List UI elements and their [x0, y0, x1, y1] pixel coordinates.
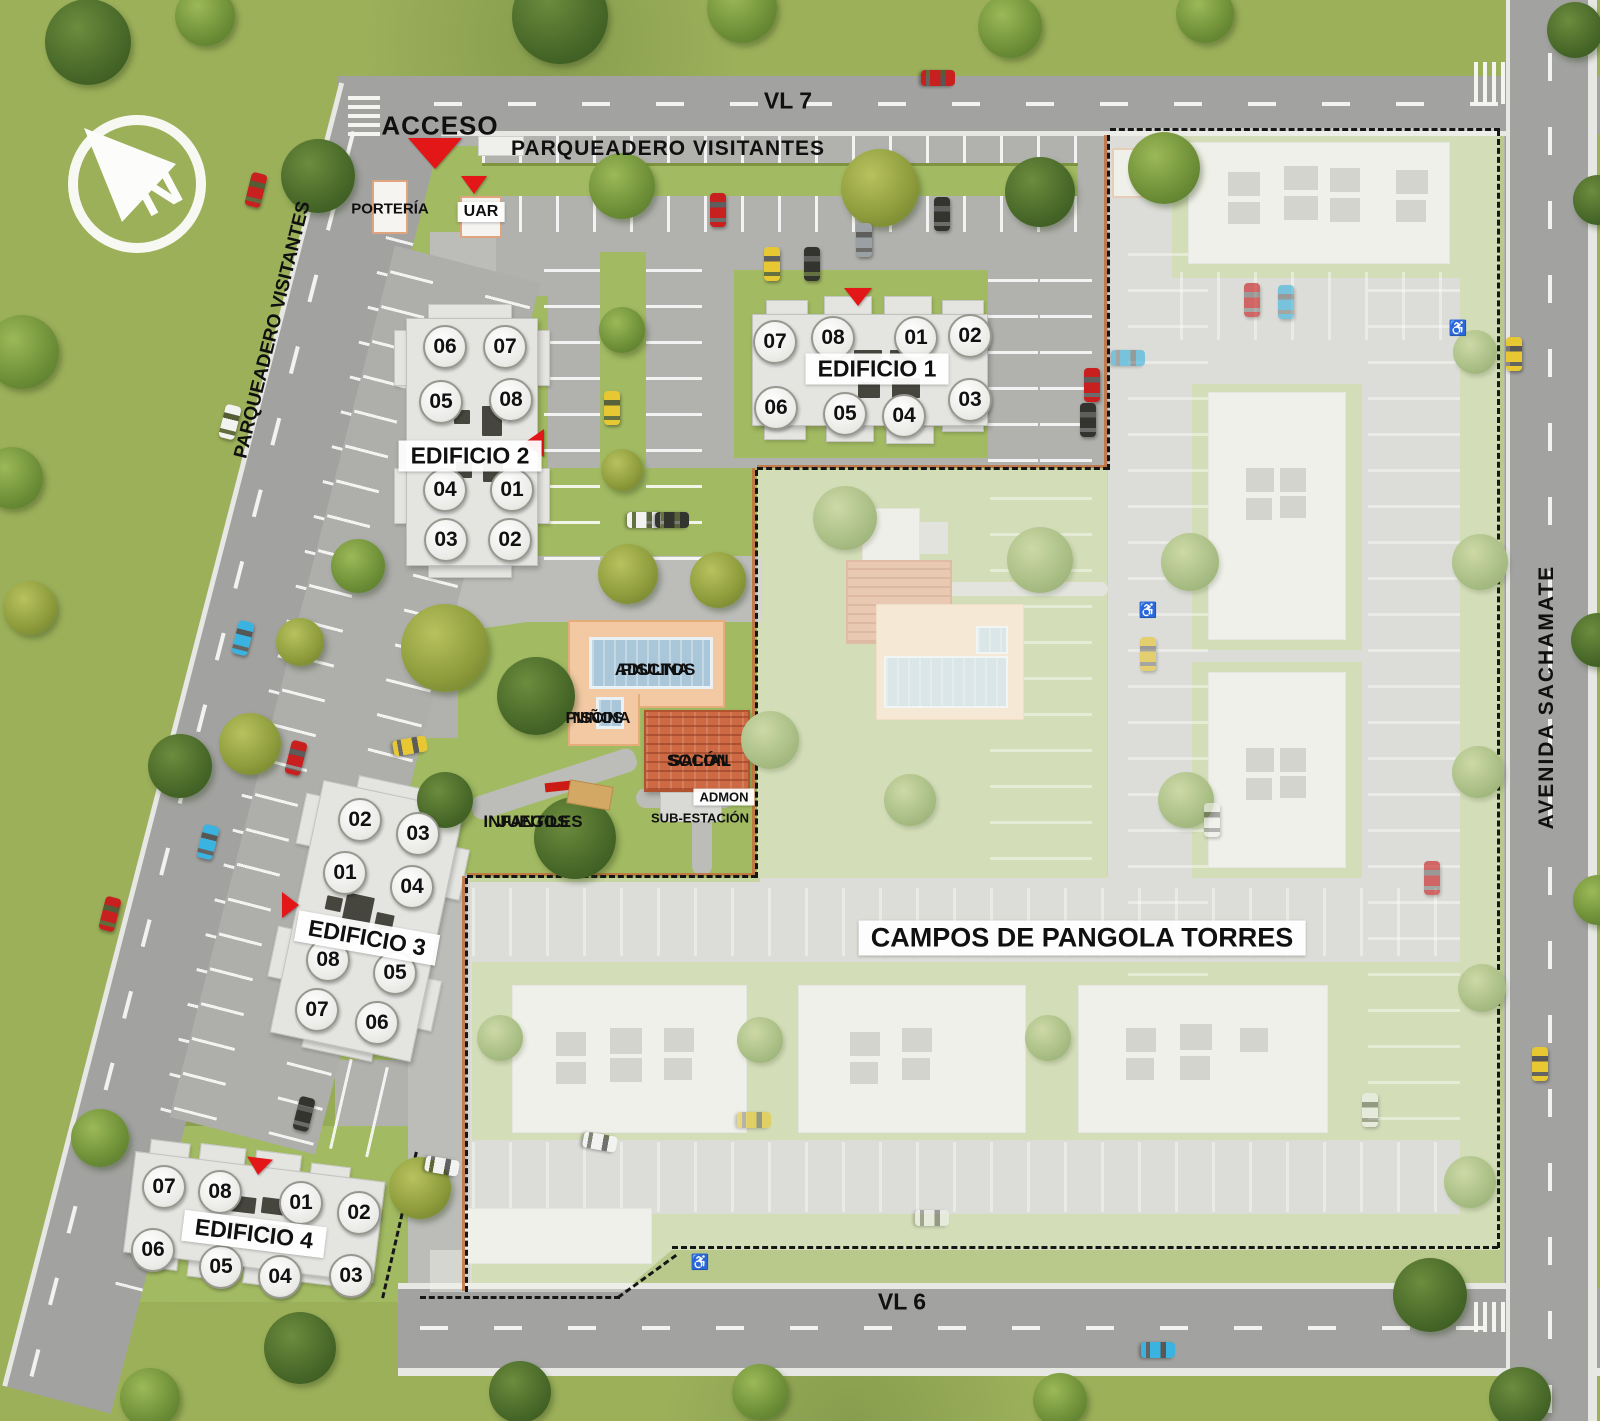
tree — [598, 544, 658, 604]
unit-badge: 01 — [490, 468, 534, 512]
accessible-parking-icon: ♿ — [1139, 601, 1158, 619]
unit-badge: 03 — [329, 1254, 373, 1298]
unit-badge: 02 — [338, 798, 382, 842]
car — [1141, 1342, 1175, 1358]
road-label-avenida: AVENIDA SACHAMATE — [1535, 565, 1559, 830]
property-line — [672, 1246, 1498, 1249]
car — [1140, 637, 1156, 671]
car — [1278, 285, 1294, 319]
ghost-roof-patch — [1246, 468, 1274, 492]
social-hall-label-line2: SOCIAL — [667, 751, 731, 770]
road-label-vl7: VL 7 — [764, 88, 812, 115]
project-label: CAMPOS DE PANGOLA TORRES — [859, 921, 1306, 956]
car — [1532, 1047, 1548, 1081]
ghost-roof-patch — [1228, 202, 1260, 224]
property-line — [467, 875, 757, 878]
property-line — [757, 467, 1109, 470]
admin-label: ADMON — [693, 789, 754, 806]
ghost-roof-patch — [850, 1032, 880, 1056]
unit-badge: 05 — [419, 380, 463, 424]
tree — [1007, 527, 1073, 593]
tree — [1033, 1373, 1087, 1421]
ghost-roof-patch — [902, 1058, 930, 1080]
unit-badge: 08 — [198, 1170, 242, 1214]
tree — [1444, 1156, 1496, 1208]
tree — [1547, 2, 1600, 58]
ghost-clubhouse-annex — [920, 522, 948, 554]
tree — [148, 734, 212, 798]
ghost-roof-patch — [1280, 496, 1306, 518]
car — [1080, 403, 1096, 437]
property-line — [1110, 128, 1500, 131]
unit-badge: 04 — [390, 865, 434, 909]
tree — [276, 618, 324, 666]
ghost-building — [1208, 672, 1346, 868]
site-plan-map: ♿ ♿ ♿ N VL 7 PARQUEADERO VISITANTES ACCE… — [0, 0, 1600, 1421]
car — [934, 197, 950, 231]
tree — [599, 307, 645, 353]
accessible-parking-icon: ♿ — [691, 1253, 710, 1271]
ghost-roof-patch — [1280, 468, 1306, 492]
unit-badge: 04 — [258, 1255, 302, 1299]
car — [804, 247, 820, 281]
unit-badge: 03 — [396, 812, 440, 856]
parking-stalls — [482, 196, 1078, 232]
ghost-roof-patch — [664, 1028, 694, 1052]
tree — [281, 139, 355, 213]
ghost-pool — [884, 656, 1008, 708]
ghost-roof-patch — [1330, 198, 1360, 222]
tree — [219, 713, 281, 775]
tree — [813, 486, 877, 550]
ghost-roof-patch — [1284, 196, 1318, 220]
property-line — [465, 878, 468, 1292]
ghost-roof-patch — [556, 1062, 586, 1084]
tree — [1452, 746, 1504, 798]
unit-badge: 07 — [295, 988, 339, 1032]
tree — [1176, 0, 1234, 43]
unit-badge: 02 — [948, 314, 992, 358]
ghost-roof-patch — [1246, 748, 1274, 772]
car — [915, 1210, 949, 1226]
car — [604, 391, 620, 425]
parking-stalls — [988, 256, 1038, 462]
unit-badge: 06 — [355, 1001, 399, 1045]
tree — [1452, 534, 1508, 590]
ghost-roof-patch — [1246, 778, 1272, 800]
ghost-roof-patch — [1228, 172, 1260, 196]
unit-badge: 08 — [489, 378, 533, 422]
road-edge — [398, 1368, 1600, 1376]
unit-badge: 01 — [279, 1181, 323, 1225]
unit-badge: 07 — [142, 1165, 186, 1209]
ghost-kids-pool — [976, 626, 1008, 654]
crosswalk — [1474, 62, 1506, 104]
car — [737, 1112, 771, 1128]
unit-badge: 07 — [483, 325, 527, 369]
ghost-parking-stalls — [1368, 270, 1460, 1120]
unit-badge: 03 — [424, 518, 468, 562]
ghost-roof-patch — [1280, 748, 1306, 772]
ghost-roof-patch — [1126, 1028, 1156, 1052]
car — [710, 193, 726, 227]
building-3-entry-arrow — [282, 892, 299, 918]
unit-badge: 04 — [882, 394, 926, 438]
ghost-roof-patch — [1246, 498, 1272, 520]
ghost-roof-patch — [850, 1062, 878, 1084]
ghost-roof-patch — [1240, 1028, 1268, 1052]
unit-badge: 06 — [423, 325, 467, 369]
ghost-building — [462, 1208, 652, 1264]
ghost-roof-patch — [664, 1058, 692, 1080]
access-arrow-small — [461, 176, 487, 194]
tree — [978, 0, 1042, 58]
property-line — [755, 470, 758, 878]
building-4-entry-arrow — [245, 1156, 273, 1176]
parking-stalls — [544, 258, 600, 560]
ghost-roof-patch — [1280, 776, 1306, 798]
ghost-roof-patch — [1126, 1058, 1154, 1080]
ghost-roof-patch — [1180, 1024, 1212, 1050]
ghost-roof-patch — [610, 1028, 642, 1054]
tree — [45, 0, 131, 85]
tree — [1458, 964, 1506, 1012]
unit-badge: 05 — [823, 392, 867, 436]
tree — [401, 604, 489, 692]
median-green — [482, 163, 1078, 196]
tree — [1161, 533, 1219, 591]
unit-badge: 04 — [423, 468, 467, 512]
tree — [489, 1361, 551, 1421]
tree — [497, 657, 575, 735]
tree — [264, 1312, 336, 1384]
tree — [3, 581, 57, 635]
tree — [120, 1368, 180, 1421]
tree — [737, 1017, 783, 1063]
tree — [690, 552, 746, 608]
tree — [1128, 132, 1200, 204]
unit-badge: 02 — [488, 518, 532, 562]
uar-label: UAR — [458, 202, 505, 222]
building-1-label: EDIFICIO 1 — [806, 354, 949, 385]
ghost-roof-patch — [1180, 1056, 1210, 1080]
car — [856, 223, 872, 257]
property-line — [420, 1296, 620, 1299]
car — [1111, 350, 1145, 366]
substation-label: SUB-ESTACIÓN — [651, 811, 749, 826]
ghost-roof-patch — [1284, 166, 1318, 190]
tree — [884, 774, 936, 826]
road-edge — [398, 1283, 1508, 1289]
car — [1084, 368, 1100, 402]
car — [1362, 1093, 1378, 1127]
ghost-roof-patch — [1396, 200, 1426, 222]
car — [1244, 283, 1260, 317]
tree — [601, 449, 643, 491]
roof-unit — [325, 895, 344, 912]
access-arrow — [408, 138, 462, 169]
road-edge — [1506, 0, 1510, 1421]
accessible-parking-icon: ♿ — [1449, 319, 1468, 337]
adults-pool-label-line2: ADULTOS — [615, 660, 696, 679]
ghost-roof-patch — [902, 1028, 932, 1052]
north-compass: N — [62, 106, 212, 262]
ghost-roof-patch — [1330, 168, 1360, 192]
ghost-roof-patch — [1396, 170, 1428, 194]
car — [1424, 861, 1440, 895]
tree — [732, 1364, 788, 1420]
crosswalk — [348, 94, 380, 136]
tree — [71, 1109, 129, 1167]
property-line — [1497, 130, 1500, 1248]
unit-badge: 06 — [754, 386, 798, 430]
parking-label-top: PARQUEADERO VISITANTES — [511, 137, 825, 161]
tree — [841, 149, 919, 227]
car — [1204, 803, 1220, 837]
tree — [589, 153, 655, 219]
tree — [741, 711, 799, 769]
car — [764, 247, 780, 281]
access-label: ACCESO — [381, 111, 498, 142]
tree — [331, 539, 385, 593]
tree — [1489, 1367, 1551, 1421]
tree — [175, 0, 235, 46]
gatehouse-label: PORTERÍA — [351, 201, 429, 218]
ghost-roof-patch — [610, 1058, 642, 1082]
ghost-building — [1208, 392, 1346, 640]
unit-badge: 02 — [337, 1191, 381, 1235]
unit-badge: 03 — [948, 378, 992, 422]
building-2-label: EDIFICIO 2 — [399, 441, 542, 472]
unit-badge: 05 — [199, 1245, 243, 1289]
unit-badge: 07 — [753, 320, 797, 364]
unit-badge: 01 — [323, 851, 367, 895]
car — [921, 70, 955, 86]
road-centerline — [360, 102, 1540, 106]
ghost-parking-stalls — [472, 1142, 1457, 1212]
tree — [1025, 1015, 1071, 1061]
tree — [1393, 1258, 1467, 1332]
ghost-parking-stalls — [1180, 272, 1460, 340]
property-line — [1107, 135, 1110, 470]
tree — [477, 1015, 523, 1061]
building-1-entry-arrow — [844, 288, 872, 306]
kids-pool-label-line2: NIÑOS — [573, 710, 624, 728]
crosswalk — [1474, 1302, 1506, 1332]
ghost-roof-patch — [556, 1032, 586, 1056]
tree — [1005, 157, 1075, 227]
unit-badge: 06 — [131, 1228, 175, 1272]
road-centerline — [420, 1326, 1580, 1330]
car — [655, 512, 689, 528]
playground-label-line2: INFANTILES — [483, 812, 582, 831]
road-label-vl6: VL 6 — [878, 1289, 926, 1316]
car — [1506, 337, 1522, 371]
